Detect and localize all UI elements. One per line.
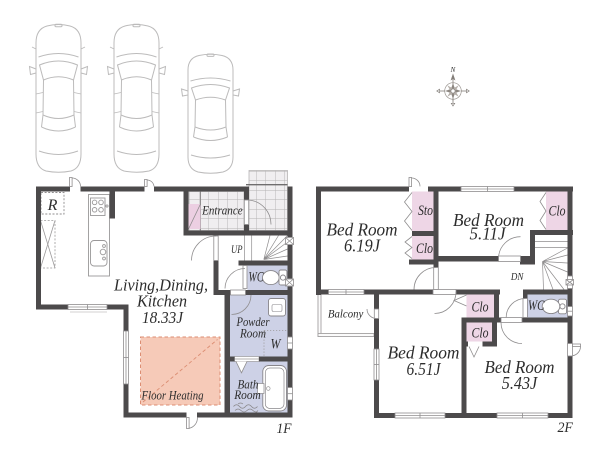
svg-text:Room: Room [239,326,266,341]
svg-text:WC: WC [249,270,265,286]
svg-text:2F: 2F [557,420,573,436]
svg-text:UP: UP [231,242,243,256]
svg-text:Balcony: Balcony [328,309,364,321]
svg-text:Entrance: Entrance [201,203,243,218]
svg-text:WC: WC [528,298,545,314]
svg-text:Clo: Clo [416,241,433,257]
svg-text:R: R [47,197,58,214]
svg-text:DN: DN [510,271,524,283]
svg-text:18.33J: 18.33J [142,308,184,327]
svg-text:5.43J: 5.43J [502,373,539,393]
svg-text:6.19J: 6.19J [344,236,381,256]
svg-text:Sto: Sto [418,203,433,219]
svg-text:1F: 1F [277,421,293,437]
svg-text:N: N [450,66,456,74]
svg-text:Clo: Clo [549,204,566,220]
svg-text:Floor Heating: Floor Heating [141,389,204,403]
svg-text:6.51J: 6.51J [407,359,442,379]
svg-text:Clo: Clo [472,326,489,342]
svg-text:5.11J: 5.11J [470,224,507,244]
svg-text:W: W [271,336,282,352]
svg-text:Clo: Clo [472,300,489,316]
svg-text:Room: Room [233,387,260,402]
